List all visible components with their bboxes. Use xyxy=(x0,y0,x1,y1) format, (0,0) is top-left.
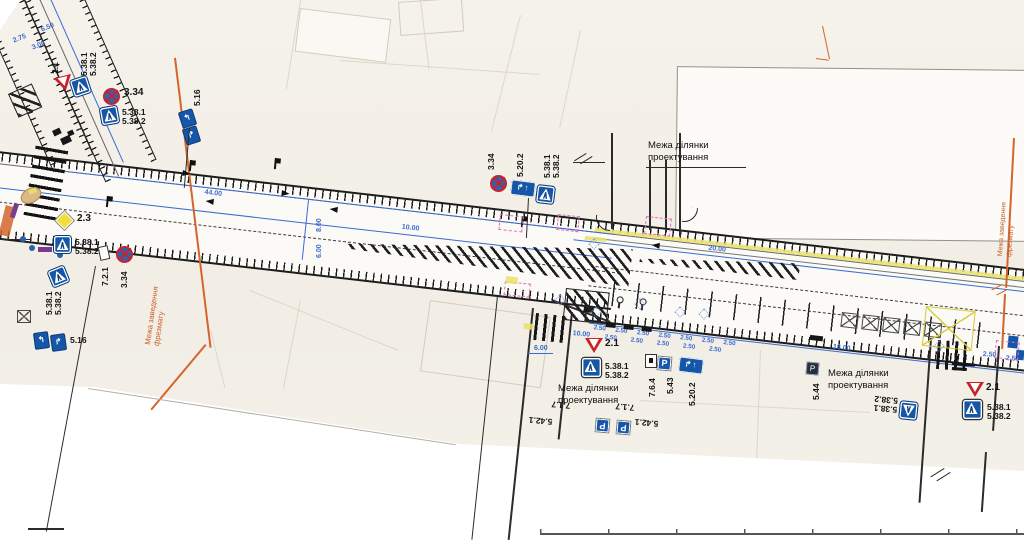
cadastral-block xyxy=(398,0,464,36)
parking-kind-label: 5.42.1 xyxy=(634,417,658,428)
crossed-box-marker xyxy=(903,319,922,336)
pink-detail-box xyxy=(994,340,1020,360)
no-stopping-sign xyxy=(490,175,507,192)
plate-764-label: 7.6.4 xyxy=(648,378,657,397)
boundary-line2: проектування xyxy=(648,152,709,164)
table-top-line xyxy=(540,533,1024,535)
ped-sign-label: 5.38.2 xyxy=(874,395,898,406)
lane-direction-sign: ↱ xyxy=(50,333,67,352)
stop-bar xyxy=(624,324,634,330)
stop-bar xyxy=(642,326,652,332)
ped-sign-label: 5.38.2 xyxy=(89,52,98,76)
lane-config-icon: ↱↑ xyxy=(684,359,698,369)
design-boundary-label-bottom-right: Межа ділянки проектування xyxy=(828,368,889,392)
lane-config-sign: ↱↑ xyxy=(678,357,704,375)
pink-detail-box xyxy=(644,216,672,237)
priority-label: 2.3 xyxy=(77,214,91,224)
lane-sign-label: 5.16 xyxy=(193,89,202,106)
pedestrian-crossing-sign xyxy=(100,106,120,126)
stop-bar xyxy=(606,322,616,328)
parking-kind-sign: P xyxy=(616,420,630,434)
parking-label: 5.43 xyxy=(666,377,675,394)
dim-stall: 2.50 xyxy=(630,337,643,345)
pink-detail-box xyxy=(556,214,580,232)
pedestrian-crossing-sign xyxy=(54,236,71,253)
yield-label: 2.1 xyxy=(986,383,1000,393)
dim-stall: 2.50 xyxy=(656,340,669,348)
dim-stall: 2.50 xyxy=(709,346,722,354)
boundary-line2: проектування xyxy=(828,380,889,392)
dim-600b: 6.00 xyxy=(316,244,323,258)
ped-sign-label: 5.38.2 xyxy=(54,291,63,315)
lane-direction-sign: ↰ xyxy=(33,331,50,350)
dim-stall: 2.50 xyxy=(593,325,606,333)
building-block xyxy=(675,66,1024,242)
parking-p-icon: P xyxy=(599,421,606,431)
boundary-underline xyxy=(646,167,746,168)
dim-stall: 2.50 xyxy=(723,340,736,348)
crossed-box-marker xyxy=(17,310,31,323)
signal-pole-mark xyxy=(38,247,52,252)
parking-p-icon: P xyxy=(620,423,627,433)
cadastral-line xyxy=(340,60,540,75)
lane-config-icon: ↱↑ xyxy=(516,182,530,192)
parking-kind-label: 5.42.1 xyxy=(528,415,552,426)
north-leg-edge xyxy=(611,133,613,229)
zone-end-sign: P xyxy=(805,361,819,375)
signal-head-mark xyxy=(20,236,26,242)
crossed-box-marker xyxy=(861,314,880,331)
dim-stall: 2.50 xyxy=(682,343,695,351)
parking-sign: P xyxy=(657,356,671,370)
pedestrian-crossing-sign xyxy=(963,400,982,419)
road-end-bar xyxy=(28,528,64,530)
dim-800: 8.00 xyxy=(316,218,323,232)
yield-sign xyxy=(585,338,603,353)
lane-config-label: 5.20.2 xyxy=(516,153,525,177)
plate-717-label: 7.1.7 xyxy=(615,402,635,412)
pedestrian-crossing-sign xyxy=(899,401,918,420)
no-stopping-label: 3.34 xyxy=(120,271,129,288)
pedestrian-crossing-sign xyxy=(536,185,555,204)
no-stopping-sign xyxy=(103,88,120,105)
traffic-arrow xyxy=(205,198,214,205)
boundary-line1: Межа ділянки xyxy=(558,383,619,395)
design-boundary-label-top: Межа ділянки проектування xyxy=(648,140,709,164)
traffic-arrow xyxy=(281,190,290,197)
lane-config-sign: ↱↑ xyxy=(510,180,536,198)
dim-line xyxy=(527,353,553,354)
dim-stall: 2.50 xyxy=(701,338,714,346)
dim-stall: 2.50 xyxy=(680,335,693,343)
dim-6: 6.00 xyxy=(534,345,548,352)
yellow-marking-patch xyxy=(523,323,534,330)
ped-sign-label: 5.38.2 xyxy=(605,371,629,380)
yellow-marking-patch xyxy=(505,276,518,284)
zone-end-label: 5.44 xyxy=(812,383,821,400)
pedestrian-crossing-sign xyxy=(582,358,601,377)
boundary-tie-line xyxy=(573,162,605,163)
traffic-arrow xyxy=(651,242,660,249)
lane-sign-label: 5.16 xyxy=(70,336,87,345)
ped-sign-label: 5.38.2 xyxy=(552,154,561,178)
cadastral-line xyxy=(559,30,581,128)
yield-label: 2.1 xyxy=(51,62,60,74)
boundary-line1: Межа ділянки xyxy=(648,140,709,152)
parking-p-icon: P xyxy=(661,358,668,368)
lane-arrow-icon: ↰ xyxy=(37,335,45,345)
yield-label: 2.1 xyxy=(605,339,619,349)
crossed-box-marker xyxy=(840,312,859,329)
crossed-box-marker xyxy=(882,317,901,334)
ped-sign-label: 5.38.2 xyxy=(122,117,146,126)
hatched-island xyxy=(563,288,610,324)
no-stopping-label: 3.34 xyxy=(124,88,143,98)
boundary-line1: Межа ділянки xyxy=(828,368,889,380)
yield-sign xyxy=(966,382,984,397)
signal-head-mark xyxy=(29,245,35,251)
zone-end-p-icon: P xyxy=(809,364,815,373)
traffic-arrow xyxy=(182,170,191,177)
plate-sign xyxy=(645,354,657,368)
yellow-crossed-box xyxy=(922,306,976,351)
plate-glyph xyxy=(649,358,653,363)
ped-sign-label: 5.38.2 xyxy=(987,412,1011,421)
no-stopping-sign xyxy=(116,246,133,263)
plate-717-label: 7.1.7 xyxy=(551,400,571,410)
lane-arrow-icon: ↰ xyxy=(183,112,192,123)
parking-kind-sign: P xyxy=(595,418,609,432)
ped-sign-label: 5.38.2 xyxy=(75,247,99,256)
cadastral-block xyxy=(295,8,392,63)
lane-config-label: 5.20.2 xyxy=(688,382,697,406)
pink-detail-box xyxy=(498,214,524,232)
lane-arrow-icon: ↱ xyxy=(54,337,62,347)
traffic-arrow xyxy=(329,206,338,213)
ped-sign-label-pair: 5.38.1 5.38.2 xyxy=(873,395,898,414)
no-stopping-label: 3.34 xyxy=(487,153,496,170)
plate-721-label: 7.2.1 xyxy=(101,267,110,286)
break-mark xyxy=(936,472,950,481)
